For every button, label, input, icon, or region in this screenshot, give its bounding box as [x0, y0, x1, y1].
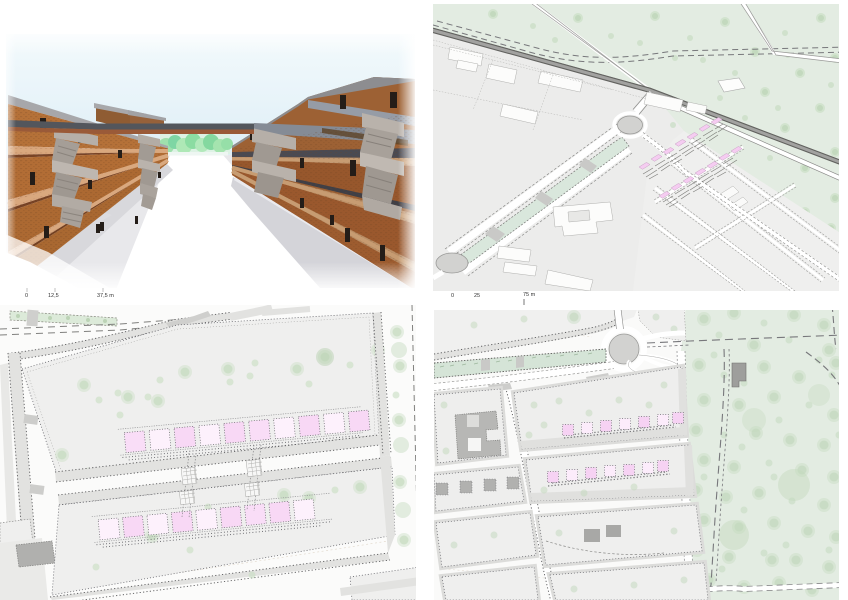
svg-text:0: 0	[451, 293, 454, 299]
svg-text:37,5 m: 37,5 m	[97, 293, 114, 299]
svg-text:0: 0	[25, 293, 28, 299]
svg-text:75 m: 75 m	[523, 292, 536, 298]
svg-text:12,5: 12,5	[48, 293, 59, 299]
svg-text:25: 25	[474, 293, 480, 299]
